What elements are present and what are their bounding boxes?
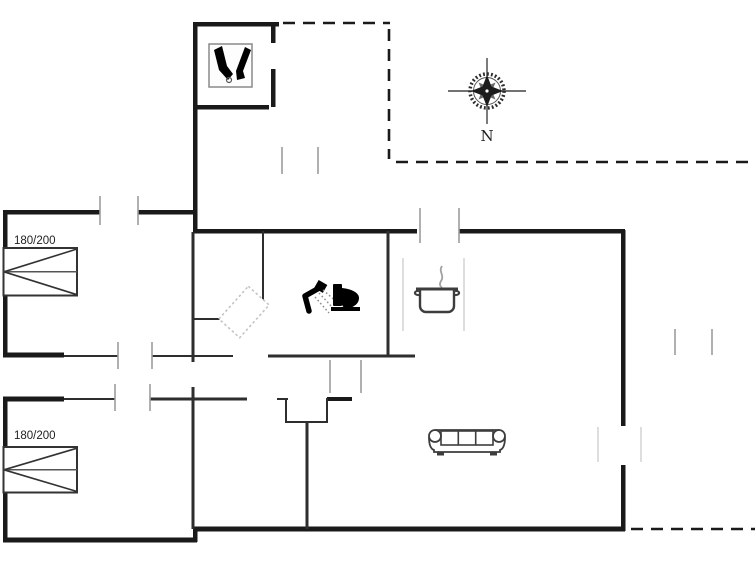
floor-plan: 180/200 180/200 N [0, 0, 755, 566]
floor-plan-drawing [0, 0, 755, 566]
compass-north-label: N [478, 129, 496, 144]
double-bed-icon [4, 248, 78, 296]
exterior-walls [3, 22, 625, 542]
bathroom-door-swing [219, 286, 269, 337]
sofa-icon [429, 430, 505, 456]
double-bed-icon [4, 447, 78, 493]
compass-rose-icon [448, 58, 526, 124]
toilet-icon [331, 284, 360, 311]
utility-boots-icon [209, 44, 252, 87]
bed-size-label: 180/200 [14, 431, 56, 443]
interior-walls [64, 231, 415, 529]
bed-size-label: 180/200 [14, 236, 56, 248]
cooking-pot-icon [415, 266, 459, 312]
terrace-dashed-outline [283, 23, 755, 529]
